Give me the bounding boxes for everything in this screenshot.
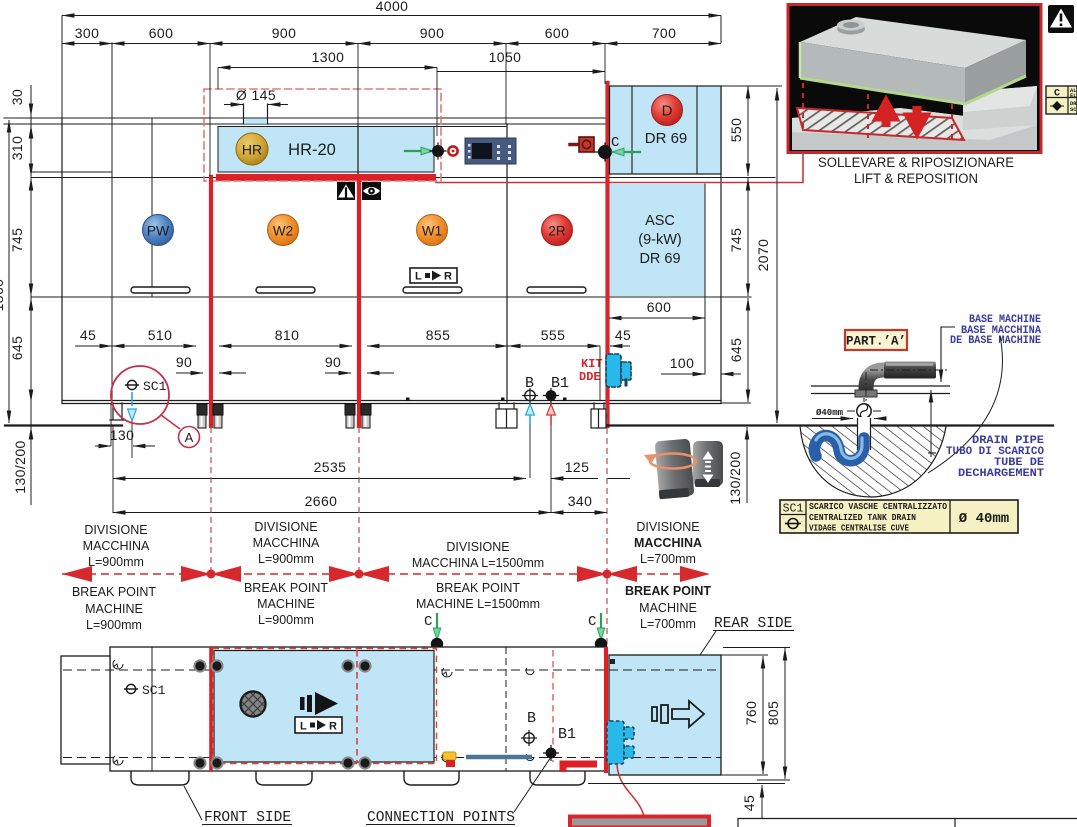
svg-text:MACCHINA: MACCHINA [83, 539, 150, 553]
svg-text:SC: SC [1070, 106, 1077, 113]
svg-text:CENTRALIZED TANK DRAIN: CENTRALIZED TANK DRAIN [809, 513, 916, 523]
svg-text:C: C [424, 614, 432, 630]
svg-text:600: 600 [149, 25, 174, 41]
svg-text:VIDAGE CENTRALISE CUVE: VIDAGE CENTRALISE CUVE [809, 524, 909, 534]
svg-text:1300: 1300 [312, 49, 345, 65]
svg-text:BREAK POINT: BREAK POINT [72, 585, 156, 599]
svg-text:CONNECTION POINTS: CONNECTION POINTS [367, 810, 515, 826]
svg-text:D: D [662, 103, 673, 120]
svg-text:BREAK POINT: BREAK POINT [244, 581, 328, 595]
svg-text:C: C [1054, 89, 1060, 100]
svg-text:SC1: SC1 [142, 683, 166, 698]
svg-text:C: C [588, 614, 596, 630]
svg-text:DIVISIONE: DIVISIONE [84, 523, 147, 537]
svg-text:W1: W1 [422, 224, 442, 239]
svg-text:745: 745 [728, 228, 744, 253]
svg-text:BREAK POINT: BREAK POINT [436, 581, 520, 595]
svg-text:SC1: SC1 [783, 503, 804, 516]
svg-text:C: C [611, 135, 619, 151]
svg-text:L=900mm: L=900mm [86, 618, 142, 632]
svg-text:600: 600 [545, 25, 570, 41]
svg-text:B: B [527, 710, 536, 727]
svg-text:HR-20: HR-20 [288, 141, 336, 159]
svg-text:760: 760 [743, 701, 759, 726]
svg-text:340: 340 [568, 493, 593, 509]
svg-text:DIVISIONE: DIVISIONE [446, 540, 509, 554]
svg-text:550: 550 [728, 118, 744, 143]
svg-text:Ø 145: Ø 145 [236, 87, 276, 103]
svg-text:MACHINE: MACHINE [639, 601, 697, 615]
svg-text:555: 555 [541, 327, 566, 343]
svg-text:2660: 2660 [305, 493, 338, 509]
svg-text:REAR SIDE: REAR SIDE [714, 616, 792, 632]
svg-text:600: 600 [647, 299, 672, 315]
svg-text:1860: 1860 [0, 279, 6, 312]
svg-text:645: 645 [9, 336, 25, 361]
svg-text:645: 645 [728, 338, 744, 363]
svg-text:W2: W2 [273, 224, 293, 239]
svg-text:130/200: 130/200 [12, 440, 28, 493]
svg-text:KIT: KIT [581, 357, 603, 371]
svg-text:310: 310 [9, 136, 25, 161]
svg-text:HR: HR [242, 142, 262, 158]
svg-text:L=900mm: L=900mm [88, 555, 144, 569]
svg-text:L=900mm: L=900mm [258, 552, 314, 566]
svg-text:Ø40mm: Ø40mm [816, 408, 844, 418]
svg-text:BREAK POINT: BREAK POINT [625, 584, 711, 598]
svg-text:4000: 4000 [376, 0, 409, 14]
svg-text:DE BASE MACHINE: DE BASE MACHINE [950, 335, 1041, 347]
svg-text:MACHINE: MACHINE [257, 597, 315, 611]
svg-text:DDE: DDE [579, 370, 601, 384]
svg-text:90: 90 [325, 354, 341, 370]
svg-text:300: 300 [75, 25, 100, 41]
svg-text:700: 700 [652, 25, 677, 41]
svg-text:900: 900 [420, 25, 445, 41]
svg-text:LIFT & REPOSITION: LIFT & REPOSITION [854, 171, 978, 186]
svg-text:855: 855 [426, 327, 451, 343]
svg-text:45: 45 [615, 327, 631, 343]
svg-text:(9-kW): (9-kW) [638, 232, 682, 248]
svg-text:DIVISIONE: DIVISIONE [636, 520, 699, 534]
svg-text:L=700mm: L=700mm [640, 617, 696, 631]
svg-text:L=700mm: L=700mm [640, 552, 696, 566]
svg-text:DECHARGEMENT: DECHARGEMENT [958, 468, 1044, 480]
svg-text:B1: B1 [551, 375, 569, 392]
svg-text:45: 45 [80, 327, 96, 343]
svg-text:PART.’A’: PART.’A’ [846, 335, 906, 349]
svg-text:DIVISIONE: DIVISIONE [254, 520, 317, 534]
svg-text:45: 45 [741, 795, 757, 811]
svg-text:EL: EL [1070, 92, 1077, 99]
svg-text:2535: 2535 [314, 459, 347, 475]
svg-text:DR 69: DR 69 [639, 251, 680, 267]
svg-text:B1: B1 [558, 726, 576, 743]
svg-text:SCARICO VASCHE CENTRALIZZATO: SCARICO VASCHE CENTRALIZZATO [809, 502, 948, 512]
svg-text:ASC: ASC [645, 213, 675, 229]
svg-text:DR 69: DR 69 [645, 130, 688, 147]
svg-text:PW: PW [147, 223, 170, 239]
svg-text:L: L [415, 271, 422, 283]
svg-text:L: L [300, 721, 307, 733]
svg-text:SOLLEVARE & RIPOSIZIONARE: SOLLEVARE & RIPOSIZIONARE [818, 155, 1014, 170]
svg-text:125: 125 [565, 459, 590, 475]
svg-text:510: 510 [148, 327, 173, 343]
svg-text:R: R [444, 271, 452, 283]
svg-text:A: A [185, 430, 194, 445]
svg-text:810: 810 [275, 327, 300, 343]
svg-text:30: 30 [9, 89, 25, 105]
svg-text:2R: 2R [548, 224, 566, 239]
svg-text:130/200: 130/200 [727, 451, 743, 504]
svg-text:805: 805 [765, 701, 781, 726]
svg-text:FRONT SIDE: FRONT SIDE [204, 810, 291, 826]
svg-text:SC1: SC1 [143, 379, 167, 394]
svg-text:745: 745 [9, 228, 25, 253]
svg-text:900: 900 [272, 25, 297, 41]
svg-text:MACCHINA: MACCHINA [253, 536, 320, 550]
svg-text:2070: 2070 [755, 239, 771, 272]
svg-text:MACHINE: MACHINE [85, 602, 143, 616]
svg-text:90: 90 [176, 354, 192, 370]
svg-text:R: R [329, 721, 337, 733]
svg-text:MACHINE L=1500mm: MACHINE L=1500mm [416, 597, 540, 611]
svg-text:100: 100 [670, 355, 695, 371]
svg-text:Ø 40mm: Ø 40mm [959, 511, 1009, 527]
svg-text:1050: 1050 [489, 49, 522, 65]
svg-text:MACCHINA L=1500mm: MACCHINA L=1500mm [412, 556, 544, 570]
svg-text:L=900mm: L=900mm [258, 613, 314, 627]
svg-text:MACCHINA: MACCHINA [634, 536, 702, 550]
